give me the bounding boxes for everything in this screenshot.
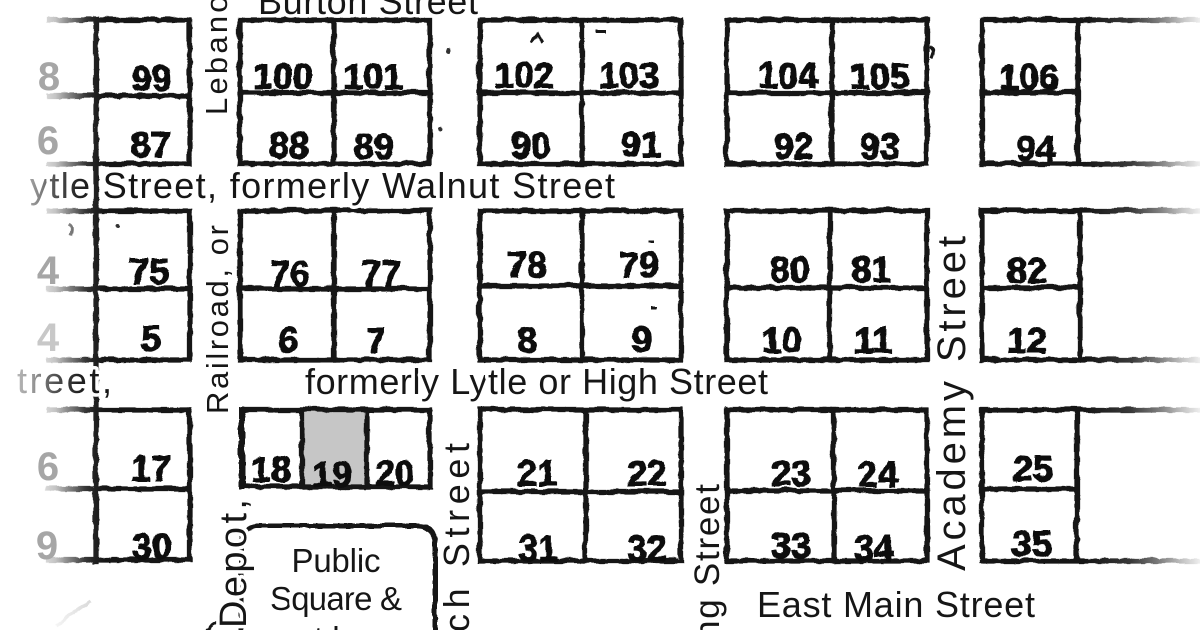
svg-text:7: 7 — [365, 319, 385, 360]
svg-text:77: 77 — [360, 252, 400, 293]
svg-text:35: 35 — [1011, 522, 1051, 563]
svg-text:Square &: Square & — [270, 580, 402, 617]
svg-text:East Main Street: East Main Street — [757, 584, 1035, 625]
svg-text:76: 76 — [269, 252, 309, 293]
svg-text:89: 89 — [353, 125, 393, 166]
svg-text:4: 4 — [37, 249, 60, 293]
svg-text:4: 4 — [37, 316, 60, 360]
svg-text:10: 10 — [761, 319, 801, 360]
svg-text:25: 25 — [1012, 447, 1052, 488]
svg-text:31: 31 — [517, 527, 557, 568]
svg-text:78: 78 — [506, 243, 546, 284]
svg-text:30: 30 — [131, 525, 171, 566]
svg-text:Depot,: Depot, — [213, 499, 255, 628]
svg-text:101: 101 — [342, 55, 402, 96]
svg-text:6: 6 — [277, 319, 297, 360]
svg-text:18: 18 — [250, 448, 290, 489]
svg-text:court house: court house — [250, 620, 422, 630]
svg-text:22: 22 — [626, 452, 666, 493]
svg-text:93: 93 — [859, 125, 899, 166]
svg-text:100: 100 — [252, 55, 312, 96]
svg-text:Public: Public — [292, 542, 381, 579]
svg-text:12: 12 — [1006, 319, 1046, 360]
svg-text:ng Street: ng Street — [688, 484, 727, 630]
svg-text:34: 34 — [853, 527, 893, 568]
svg-text:104: 104 — [757, 54, 817, 95]
svg-text:87: 87 — [130, 123, 170, 164]
svg-text:6: 6 — [37, 119, 59, 163]
svg-text:79: 79 — [618, 244, 658, 285]
svg-text:ch Street: ch Street — [436, 443, 477, 630]
svg-text:32: 32 — [626, 527, 666, 568]
svg-text:ytle Street, formerly Walnut S: ytle Street, formerly Walnut Street — [30, 165, 615, 206]
svg-text:23: 23 — [770, 452, 810, 493]
svg-text:82: 82 — [1006, 249, 1046, 290]
svg-text:103: 103 — [598, 54, 658, 95]
svg-text:33: 33 — [770, 524, 810, 565]
svg-text:6: 6 — [37, 445, 59, 489]
svg-text:75: 75 — [128, 250, 168, 291]
svg-text:8: 8 — [516, 319, 536, 360]
svg-text:90: 90 — [510, 124, 550, 165]
svg-text:92: 92 — [773, 125, 813, 166]
svg-text:17: 17 — [130, 447, 170, 488]
svg-text:81: 81 — [850, 248, 890, 289]
svg-text:11: 11 — [853, 319, 891, 360]
svg-text:formerly Lytle or High Street: formerly Lytle or High Street — [305, 361, 768, 402]
svg-text:19: 19 — [311, 453, 351, 494]
svg-text:Burton Street: Burton Street — [258, 0, 478, 22]
svg-text:21: 21 — [516, 452, 556, 493]
svg-text:105: 105 — [849, 55, 909, 96]
svg-text:20: 20 — [374, 452, 414, 493]
svg-text:24: 24 — [857, 453, 897, 494]
svg-text:9: 9 — [631, 319, 651, 360]
svg-text:102: 102 — [493, 54, 553, 95]
svg-text:8: 8 — [38, 55, 60, 99]
svg-text:106: 106 — [998, 56, 1058, 97]
svg-text:91: 91 — [620, 123, 660, 164]
svg-text:5: 5 — [140, 317, 160, 358]
svg-text:99: 99 — [131, 57, 171, 98]
svg-text:94: 94 — [1015, 127, 1055, 168]
svg-text:80: 80 — [769, 248, 809, 289]
svg-text:9: 9 — [36, 524, 58, 568]
svg-text:88: 88 — [268, 124, 308, 165]
